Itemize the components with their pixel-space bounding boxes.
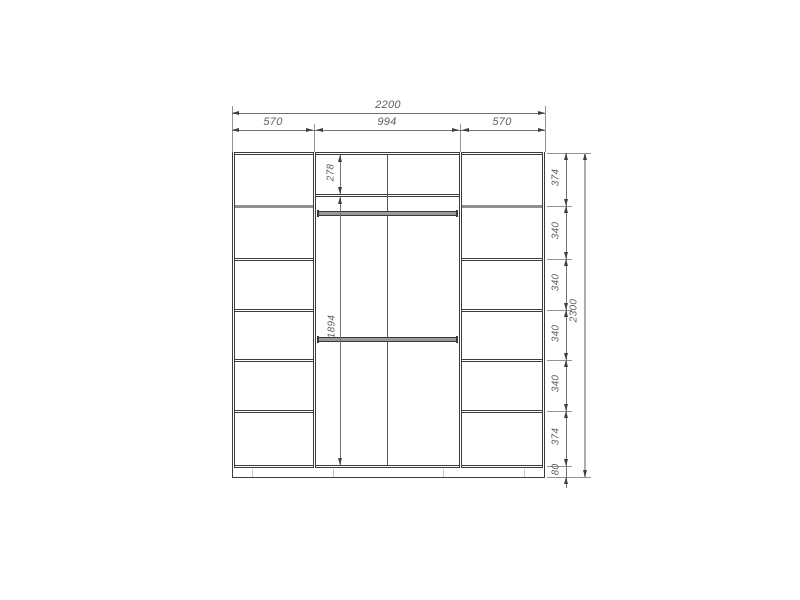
rail-end-cap [456,336,458,343]
dim-label-left-section-width: 570 [238,117,308,128]
dim-arrow [452,128,459,132]
dim-label-right-section-width: 570 [467,117,537,128]
dim-label-shelf-gap-2: 340 [551,209,562,253]
dim-label-shelf-gap-4: 340 [551,312,562,356]
dim-arrow [338,458,342,465]
leg-tick [443,469,444,477]
left-divider-panel [313,152,316,468]
shelf-line [462,258,542,261]
dim-label-shelf-gap-3: 340 [551,261,562,305]
dim-arrow [538,128,545,132]
dim-arrow [564,259,568,266]
dim-arrow [564,411,568,418]
shelf-line [462,309,542,312]
rail-end-cap [317,210,319,217]
dim-arrow [583,470,587,477]
dim-arrow [564,310,568,317]
dim-arrow [538,111,545,115]
right-side-panel [542,152,545,468]
dim-label-shelf-gap-5: 340 [551,362,562,406]
dim-arrow [306,128,313,132]
dim-label-hanging-space-height: 1894 [327,305,338,349]
dim-arrow [564,360,568,367]
dim-arrow [338,197,342,204]
dimension-line-sections [232,130,545,131]
dim-arrow [232,111,239,115]
hanging-rail-upper [318,211,457,216]
dim-label-shelf-gap-1: 374 [551,156,562,200]
dim-arrow [564,459,568,466]
dim-arrow [564,206,568,213]
dim-arrow [583,153,587,160]
rail-end-cap [456,210,458,217]
rail-end-cap [317,336,319,343]
leg-tick [524,469,525,477]
dim-arrow [462,128,469,132]
dim-arrow [564,353,568,360]
leg-tick [252,469,253,477]
center-divider-line [387,155,388,465]
shelf-line [462,410,542,413]
dim-label-middle-section-width: 994 [352,117,422,128]
dim-label-top-compartment-height: 278 [326,151,337,195]
shelf-line [235,309,313,312]
dim-arrow [232,128,239,132]
shelf-line [235,359,313,362]
wardrobe-elevation-drawing: 2200 570 994 570 374 340 340 340 340 374… [0,0,800,600]
top-panel [232,152,545,155]
dim-arrow [564,404,568,411]
dim-arrow [316,128,323,132]
shelf-line [462,205,542,208]
shelf-line [235,258,313,261]
shelf-line [462,359,542,362]
dim-arrow [564,252,568,259]
dim-label-plinth-height: 80 [551,448,562,492]
extension-line [460,124,461,152]
dim-arrow [338,155,342,162]
dim-arrow [564,477,568,484]
hanging-rail-lower [318,337,457,342]
extension-line [545,106,546,152]
dim-arrow [338,187,342,194]
extension-line [314,124,315,152]
dim-label-overall-width: 2200 [353,100,423,111]
shelf-line [235,205,313,208]
dim-arrow [564,153,568,160]
dimension-line-overall-width [232,113,545,114]
plinth [232,468,545,478]
dim-arrow [564,303,568,310]
dimension-line-overall-height [584,153,586,477]
leg-tick [333,469,334,477]
dim-arrow [564,199,568,206]
extension-line [547,411,572,412]
dimension-line-hanging-space [340,197,341,465]
dim-label-overall-height: 2300 [569,289,580,333]
shelf-line [235,410,313,413]
extension-line [547,206,572,207]
